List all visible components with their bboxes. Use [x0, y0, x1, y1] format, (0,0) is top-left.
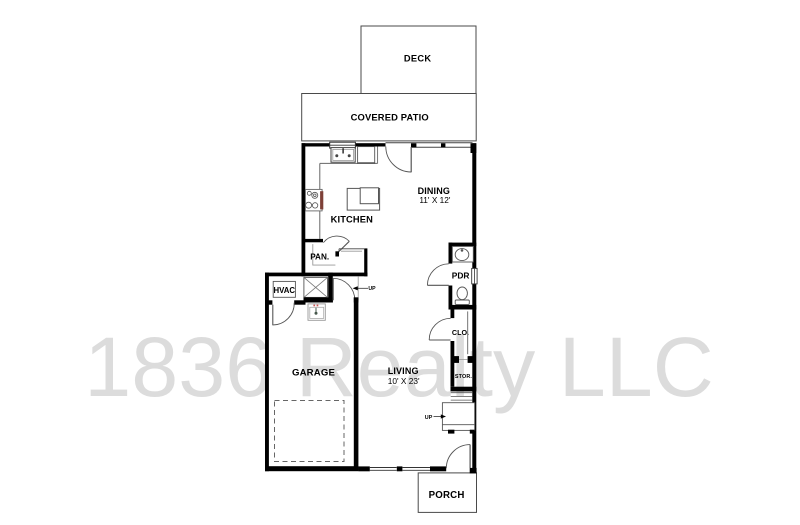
svg-text:KITCHEN: KITCHEN: [331, 215, 374, 225]
svg-text:HVAC: HVAC: [274, 286, 296, 295]
svg-text:LIVING: LIVING: [388, 366, 419, 376]
svg-text:UP: UP: [425, 415, 433, 421]
svg-text:10' X 23': 10' X 23': [388, 376, 420, 386]
svg-text:UP: UP: [368, 286, 376, 292]
svg-text:PORCH: PORCH: [429, 490, 465, 501]
svg-text:DECK: DECK: [404, 53, 432, 63]
svg-text:PDR: PDR: [452, 271, 470, 281]
svg-text:PAN.: PAN.: [310, 252, 329, 261]
svg-text:COVERED PATIO: COVERED PATIO: [351, 111, 429, 122]
svg-text:STOR.: STOR.: [455, 374, 472, 380]
svg-text:CLO.: CLO.: [452, 328, 469, 337]
svg-text:GARAGE: GARAGE: [292, 368, 335, 379]
svg-text:11' X 12': 11' X 12': [419, 195, 451, 205]
